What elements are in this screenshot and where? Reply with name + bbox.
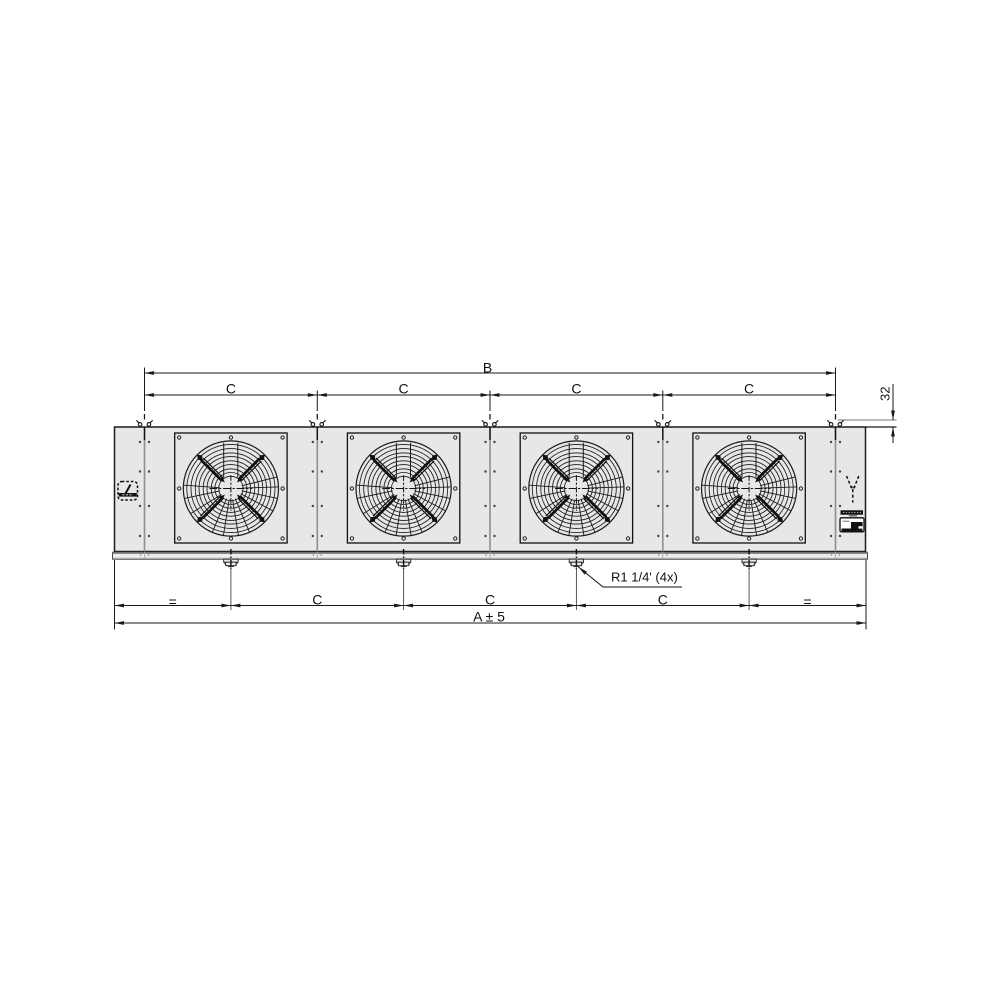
svg-text:32: 32 bbox=[878, 387, 893, 401]
svg-text:C: C bbox=[658, 591, 668, 607]
svg-text:A ± 5: A ± 5 bbox=[473, 609, 505, 625]
svg-text:=: = bbox=[804, 594, 812, 610]
svg-text:C: C bbox=[312, 591, 322, 607]
svg-text:C: C bbox=[744, 381, 754, 397]
svg-text:R1 1/4' (4x): R1 1/4' (4x) bbox=[611, 570, 678, 585]
svg-text:C: C bbox=[571, 381, 581, 397]
svg-text:C: C bbox=[226, 381, 236, 397]
svg-text:C: C bbox=[399, 381, 409, 397]
svg-text:B: B bbox=[483, 359, 492, 375]
svg-text:=: = bbox=[169, 594, 177, 610]
svg-text:C: C bbox=[485, 591, 495, 607]
